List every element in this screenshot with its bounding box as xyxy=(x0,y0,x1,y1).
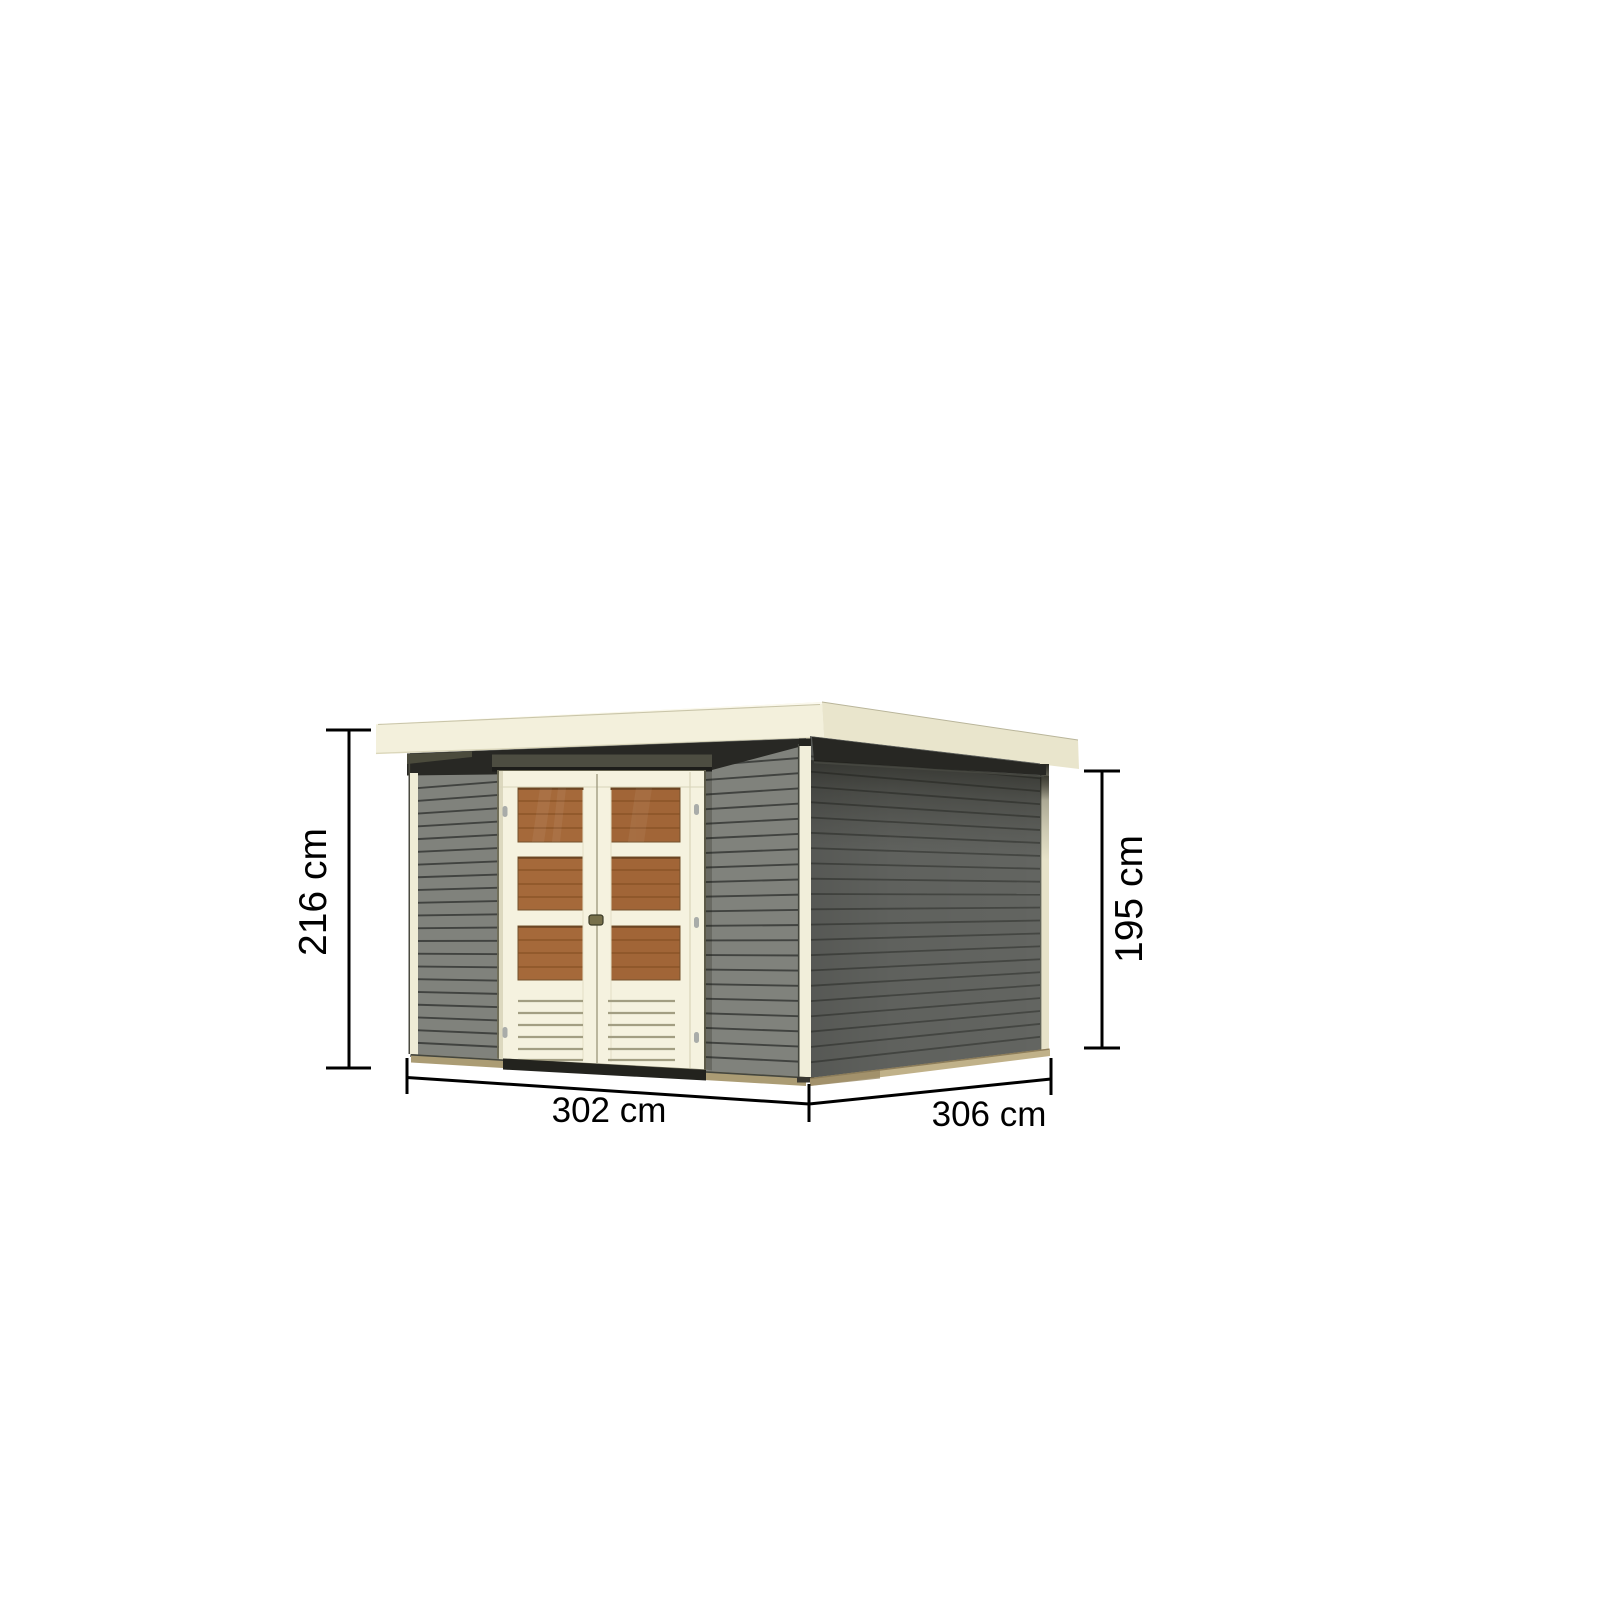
svg-text:216 cm: 216 cm xyxy=(292,828,335,956)
svg-text:195 cm: 195 cm xyxy=(1108,835,1151,963)
svg-text:306 cm: 306 cm xyxy=(932,1095,1047,1134)
svg-text:302 cm: 302 cm xyxy=(552,1091,667,1130)
